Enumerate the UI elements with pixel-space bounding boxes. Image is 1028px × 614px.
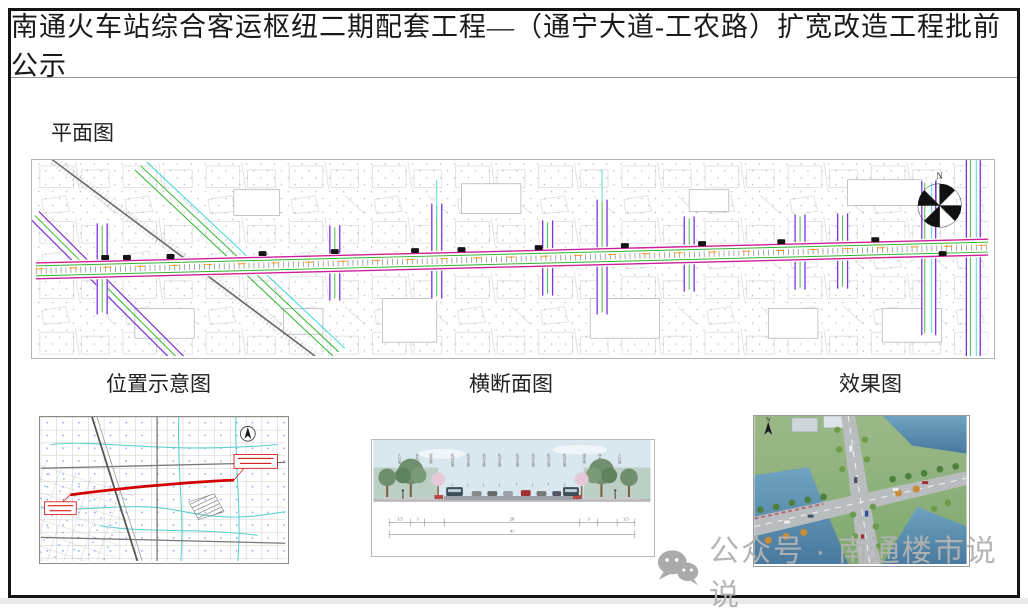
cross-section-figure-label: 横断面图: [469, 368, 553, 398]
svg-text:机动车道: 机动车道: [450, 453, 454, 468]
plan-section-label: 平面图: [51, 117, 114, 147]
svg-text:28: 28: [510, 517, 514, 522]
svg-text:机动车道: 机动车道: [515, 453, 519, 468]
svg-text:绿化带: 绿化带: [428, 453, 432, 465]
location-figure-label: 位置示意图: [106, 368, 211, 398]
cross-section-figure: 人行道 非机动车道 绿化带 机动车道 机动车道 机动车道 机动车道 机动车道 机…: [371, 439, 655, 557]
map-north-arrow-icon: [240, 426, 255, 441]
route-callout-start: [45, 502, 77, 515]
wechat-icon: [655, 548, 701, 592]
svg-text:机动车道: 机动车道: [497, 453, 501, 468]
notice-frame: 南通火车站综合客运枢纽二期配套工程—（通宁大道-工农路）扩宽改造工程批前公示 平…: [8, 8, 1020, 598]
svg-text:机动车道: 机动车道: [465, 453, 469, 468]
svg-text:↓: ↓: [482, 482, 485, 488]
plan-drawing-svg: N: [32, 160, 992, 356]
svg-text:3: 3: [417, 517, 419, 522]
svg-text:↑: ↑: [547, 482, 550, 488]
svg-text:↓: ↓: [531, 482, 534, 488]
rendering-figure-label: 效果图: [839, 368, 902, 398]
svg-text:3: 3: [588, 517, 590, 522]
svg-text:人行道: 人行道: [397, 453, 401, 465]
svg-text:↓: ↓: [498, 482, 501, 488]
planter-left: [434, 495, 443, 499]
north-label: N: [936, 171, 943, 181]
svg-text:3.5: 3.5: [623, 517, 628, 522]
cross-section-svg: 人行道 非机动车道 绿化带 机动车道 机动车道 机动车道 机动车道 机动车道 机…: [372, 440, 652, 554]
svg-text:绿化带: 绿化带: [581, 453, 585, 465]
sidewalk-left: [383, 497, 434, 499]
svg-text:人行道: 人行道: [617, 453, 621, 465]
location-map-figure: [39, 416, 289, 564]
sidewalk-right: [582, 497, 639, 499]
location-map-svg: [40, 417, 286, 561]
svg-text:3.5: 3.5: [397, 517, 402, 522]
svg-text:机动车道: 机动车道: [530, 453, 534, 468]
title-bar: 南通火车站综合客运枢纽二期配套工程—（通宁大道-工农路）扩宽改造工程批前公示: [11, 11, 1017, 78]
svg-text:↑: ↑: [516, 482, 519, 488]
watermark: 公众号 · 南通楼市说说: [655, 545, 1017, 595]
notice-title: 南通火车站综合客运枢纽二期配套工程—（通宁大道-工农路）扩宽改造工程批前公示: [11, 5, 1017, 83]
svg-text:机动车道: 机动车道: [546, 453, 550, 468]
svg-text:机动车道: 机动车道: [481, 453, 485, 468]
watermark-text: 公众号 · 南通楼市说说: [709, 526, 1017, 614]
svg-text:↓: ↓: [466, 482, 469, 488]
plan-drawing-figure: N: [31, 159, 995, 359]
svg-text:机动车道: 机动车道: [562, 453, 566, 468]
route-callout-end: [234, 454, 277, 468]
svg-text:41: 41: [510, 528, 514, 533]
svg-text:N: N: [766, 417, 771, 423]
carriageway: [444, 496, 580, 500]
